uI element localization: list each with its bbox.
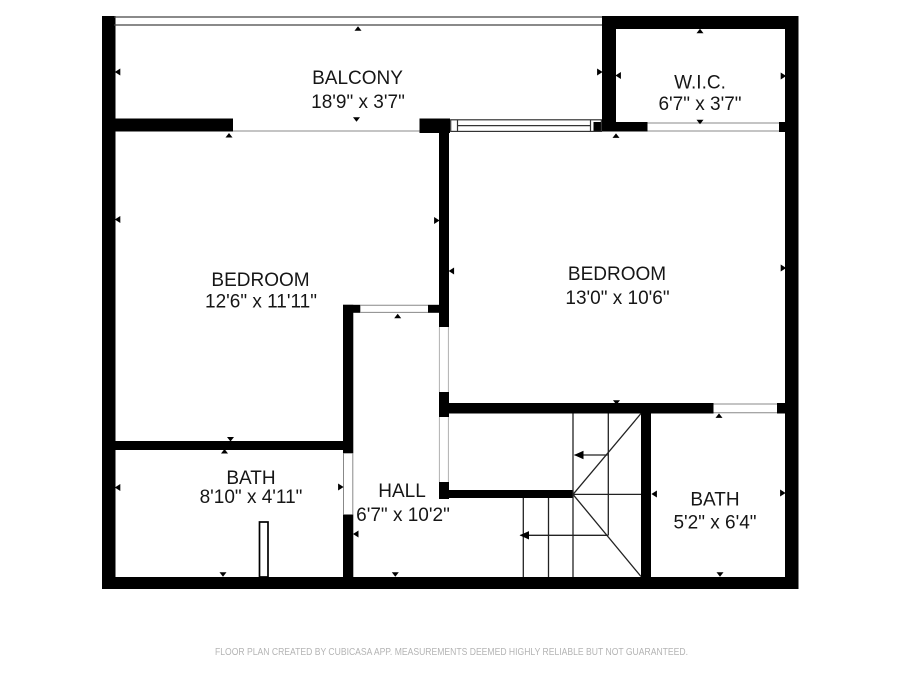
svg-text:BALCONY: BALCONY <box>312 68 403 89</box>
svg-text:W.I.C.: W.I.C. <box>674 73 726 94</box>
svg-text:5'2" x 6'4": 5'2" x 6'4" <box>673 513 756 534</box>
svg-text:BEDROOM: BEDROOM <box>211 270 309 291</box>
svg-text:BEDROOM: BEDROOM <box>568 264 666 285</box>
svg-text:FLOOR PLAN CREATED BY CUBICASA: FLOOR PLAN CREATED BY CUBICASA APP. MEAS… <box>215 647 688 658</box>
svg-text:8'10" x 4'11": 8'10" x 4'11" <box>200 487 303 508</box>
svg-text:18'9" x 3'7": 18'9" x 3'7" <box>311 92 405 113</box>
svg-text:13'0" x 10'6": 13'0" x 10'6" <box>565 288 669 309</box>
svg-text:6'7" x 3'7": 6'7" x 3'7" <box>658 94 741 115</box>
svg-text:BATH: BATH <box>690 490 739 511</box>
svg-text:6'7" x 10'2": 6'7" x 10'2" <box>356 505 450 526</box>
svg-text:HALL: HALL <box>378 481 426 502</box>
svg-text:12'6" x 11'11": 12'6" x 11'11" <box>205 292 317 313</box>
svg-text:BATH: BATH <box>226 468 275 489</box>
